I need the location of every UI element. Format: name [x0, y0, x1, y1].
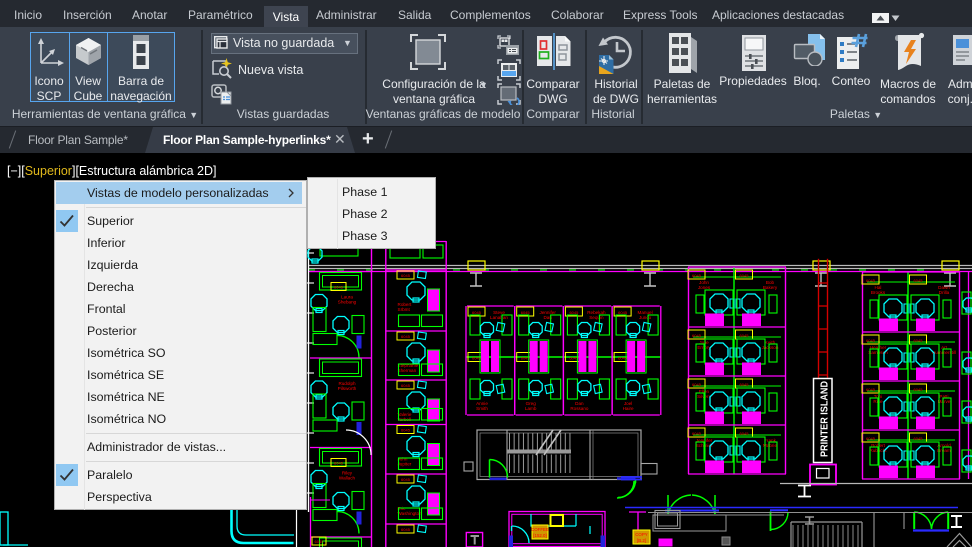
svg-text:Smith: Smith	[476, 406, 488, 411]
svg-text:Sequin: Sequin	[589, 315, 604, 320]
svg-text:Rossano: Rossano	[570, 406, 589, 411]
svg-text:6045: 6045	[914, 387, 924, 392]
svg-text:6045: 6045	[401, 273, 411, 278]
svg-text:6045: 6045	[401, 477, 411, 482]
svg-text:Jupiter: Jupiter	[398, 462, 412, 467]
svg-text:6045: 6045	[401, 383, 411, 388]
svg-text:Bakery: Bakery	[763, 285, 778, 290]
svg-text:Pilsworth: Pilsworth	[338, 386, 357, 391]
svg-text:Jones: Jones	[698, 285, 711, 290]
svg-text:Shebang: Shebang	[338, 300, 357, 305]
svg-text:Lamb: Lamb	[525, 406, 537, 411]
svg-text:Brooks: Brooks	[871, 290, 886, 295]
svg-text:Srbmt: Srbmt	[398, 307, 411, 312]
svg-text:Junco: Junco	[639, 315, 652, 320]
svg-text:6045: 6045	[401, 527, 411, 532]
svg-text:6045: 6045	[692, 431, 702, 436]
svg-text:6045: 6045	[401, 428, 411, 433]
svg-text:6045: 6045	[692, 382, 702, 387]
svg-text:6045: 6045	[740, 273, 750, 278]
svg-text:6045: 6045	[315, 539, 325, 544]
svg-text:Haire: Haire	[623, 406, 634, 411]
svg-text:6045: 6045	[866, 338, 876, 343]
svg-text:COPY: COPY	[635, 532, 648, 537]
svg-text:6045: 6045	[334, 285, 344, 290]
svg-text:6045: 6045	[866, 387, 876, 392]
svg-text:6045: 6045	[914, 338, 924, 343]
svg-text:6045: 6045	[866, 278, 876, 283]
svg-text:6045: 6045	[914, 278, 924, 283]
svg-text:COFFEE: COFFEE	[531, 527, 549, 532]
svg-text:Hummerstill: Hummerstill	[932, 350, 956, 355]
svg-text:[B.2]: [B.2]	[637, 538, 646, 543]
svg-text:Jackson: Jackson	[762, 345, 779, 350]
svg-text:Wallach: Wallach	[339, 476, 356, 481]
svg-text:6045: 6045	[866, 436, 876, 441]
svg-text:6045: 6045	[401, 334, 411, 339]
svg-text:[152.0]: [152.0]	[533, 533, 546, 538]
svg-text:Washington: Washington	[398, 511, 423, 516]
svg-text:6045: 6045	[692, 273, 702, 278]
svg-text:6045: 6045	[334, 461, 344, 466]
svg-text:Marve: Marve	[938, 399, 951, 404]
svg-text:Drilla: Drilla	[939, 290, 950, 295]
svg-text:6045: 6045	[740, 382, 750, 387]
svg-text:6045: 6045	[740, 431, 750, 436]
svg-text:6045: 6045	[914, 436, 924, 441]
svg-text:6045: 6045	[692, 333, 702, 338]
svg-text:6045: 6045	[740, 333, 750, 338]
svg-text:Sherman: Sherman	[398, 368, 417, 373]
svg-text:PRINTER ISLAND: PRINTER ISLAND	[819, 381, 831, 457]
svg-text:Lanahan: Lanahan	[490, 315, 508, 320]
